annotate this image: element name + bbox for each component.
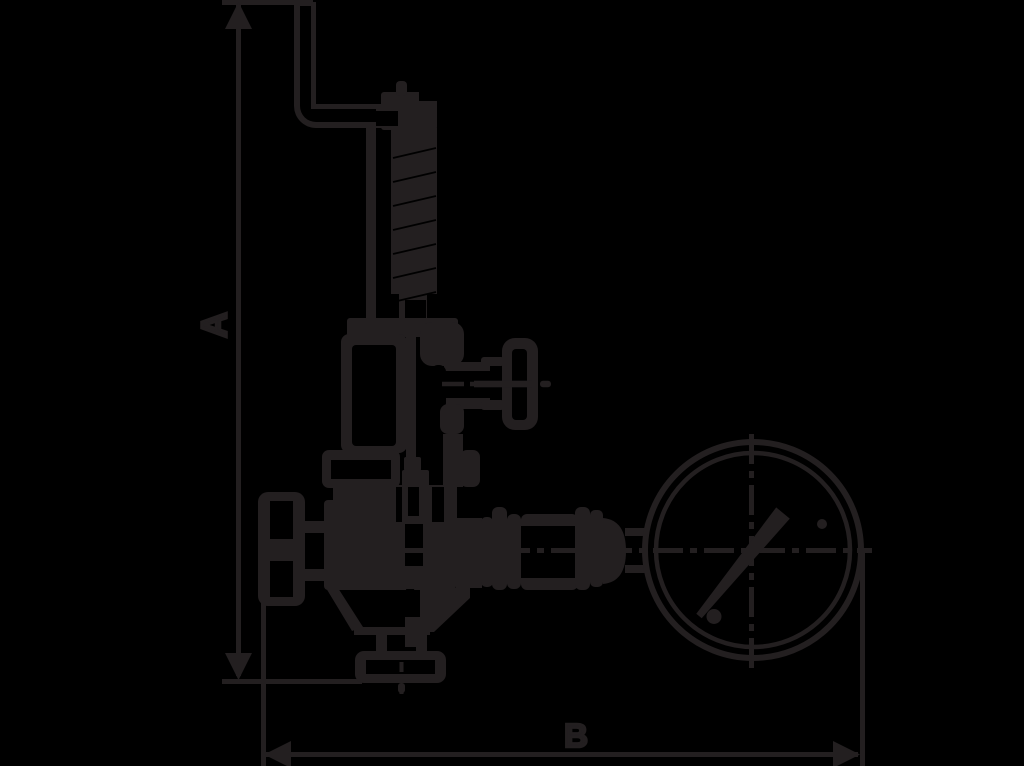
- svg-text:B: B: [564, 717, 588, 754]
- svg-text:A: A: [194, 312, 235, 338]
